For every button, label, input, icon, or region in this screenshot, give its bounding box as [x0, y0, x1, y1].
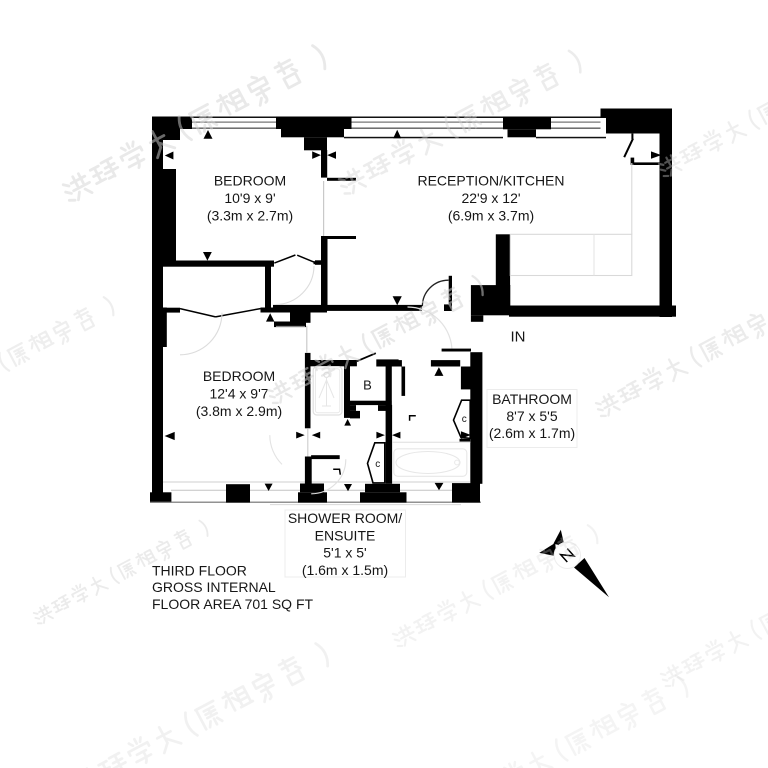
svg-text:FLOOR AREA 701 SQ FT: FLOOR AREA 701 SQ FT: [152, 596, 314, 612]
svg-text:(3.3m x 2.7m): (3.3m x 2.7m): [207, 208, 293, 224]
svg-text:B: B: [363, 378, 372, 393]
svg-text:c: c: [375, 459, 380, 470]
svg-text:BEDROOM: BEDROOM: [203, 368, 275, 384]
svg-text:(1.6m x 1.5m): (1.6m x 1.5m): [302, 562, 388, 578]
svg-text:SHOWER ROOM/: SHOWER ROOM/: [288, 510, 402, 526]
svg-text:RECEPTION/KITCHEN: RECEPTION/KITCHEN: [417, 173, 564, 189]
svg-text:THIRD FLOOR: THIRD FLOOR: [152, 562, 247, 578]
svg-text:22'9 x 12': 22'9 x 12': [461, 190, 520, 206]
svg-text:GROSS INTERNAL: GROSS INTERNAL: [152, 579, 276, 595]
svg-text:IN: IN: [511, 329, 526, 346]
svg-text:8'7 x 5'5: 8'7 x 5'5: [506, 408, 557, 424]
svg-text:5'1 x 5': 5'1 x 5': [323, 545, 366, 561]
svg-text:BATHROOM: BATHROOM: [492, 391, 572, 407]
svg-text:(3.8m x 2.9m): (3.8m x 2.9m): [196, 403, 282, 419]
svg-text:10'9 x 9': 10'9 x 9': [224, 190, 275, 206]
svg-text:(2.6m x 1.7m): (2.6m x 1.7m): [489, 425, 575, 441]
svg-text:12'4 x 9'7: 12'4 x 9'7: [209, 386, 268, 402]
svg-text:BEDROOM: BEDROOM: [214, 173, 286, 189]
svg-text:c: c: [462, 414, 467, 425]
svg-text:(6.9m x 3.7m): (6.9m x 3.7m): [448, 208, 534, 224]
svg-text:ENSUITE: ENSUITE: [315, 527, 376, 543]
